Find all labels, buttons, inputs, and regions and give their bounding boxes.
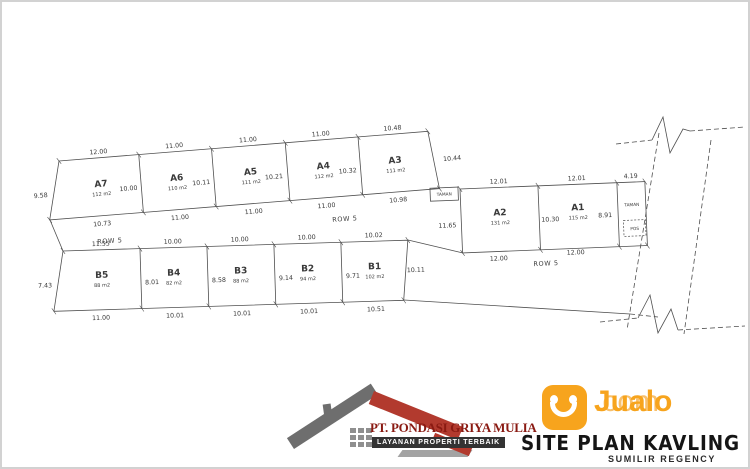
dim-a6-right: 10.11 <box>192 179 211 187</box>
dim-b5-left: 7.43 <box>38 282 52 289</box>
dim-a4-bottom: 11.00 <box>317 202 336 210</box>
right-road-right-line <box>684 140 711 334</box>
plan-title: SITE PLAN KAVLING <box>521 431 740 455</box>
window-icon <box>350 428 372 448</box>
garden-box-label: TAMAN <box>436 191 452 198</box>
dim-a2-top: 12.01 <box>490 178 508 186</box>
road-bottom-line <box>404 300 630 314</box>
dim-b4-bottom: 10.01 <box>166 312 184 320</box>
brand-name: Jualo.com <box>594 385 659 419</box>
plot-a5-area: 111 m2 <box>242 179 262 187</box>
plot-a6-id: A6 <box>170 173 184 184</box>
dim-a5-bottom: 11.00 <box>244 208 263 216</box>
dim-a3-bottom: 10.98 <box>389 196 408 204</box>
dim-a7-left: 9.58 <box>33 192 48 200</box>
plot-a3-area: 111 m2 <box>386 167 406 175</box>
plot-b1-id: B1 <box>368 262 381 272</box>
block-row-a: A7 112 m2 A6 110 m2 A5 111 m2 A4 112 m2 … <box>30 120 464 233</box>
dim-a2-left: 11.65 <box>438 222 456 230</box>
chimney-shape <box>323 404 334 425</box>
plot-a1-area: 115 m2 <box>569 215 588 222</box>
block-row-b: B5 88 m2 B4 82 m2 B3 88 m2 B2 94 m2 B1 1… <box>37 231 426 324</box>
plot-a7-area: 112 m2 <box>92 191 112 199</box>
plan-subtitle: SUMILIR REGENCY <box>608 454 716 464</box>
dim-a1-top: 12.01 <box>568 175 586 183</box>
dim-b1-right: 10.11 <box>407 267 425 275</box>
right-road-top-dash-left <box>616 140 652 144</box>
dim-a5-right: 10.21 <box>265 173 284 181</box>
dim-a1-right: 8.91 <box>598 212 612 220</box>
dim-b4-right: 8.58 <box>212 277 226 284</box>
dim-a7-top: 12.00 <box>89 148 108 156</box>
dim-b4-top: 10.00 <box>164 238 182 246</box>
dim-b2-right: 9.71 <box>346 273 360 280</box>
right-road-top-dash-right <box>690 127 745 131</box>
dim-a1-bottom: 12.00 <box>567 249 585 257</box>
plot-a5-id: A5 <box>244 167 258 178</box>
dim-b3-top: 10.00 <box>231 236 249 244</box>
road-label-left: ROW 5 <box>97 236 123 246</box>
dim-a3-right: 10.44 <box>443 155 462 163</box>
plot-b1-area: 102 m2 <box>365 274 384 281</box>
dim-a4-right: 10.32 <box>338 167 357 175</box>
plot-a4-id: A4 <box>316 161 330 172</box>
break-symbol-bottom <box>638 295 678 333</box>
dim-b1-bottom: 10.51 <box>367 306 385 314</box>
dim-a5-top: 11.00 <box>239 136 258 144</box>
dim-b3-right: 9.14 <box>279 275 293 282</box>
company-tagline: LAYANAN PROPERTI TERBAIK <box>372 437 505 448</box>
dim-b1-top: 10.02 <box>365 232 383 240</box>
plot-b3-id: B3 <box>234 266 247 276</box>
brand-name-main: Jualo <box>594 385 672 419</box>
dim-a2-bottom: 12.00 <box>490 255 508 263</box>
plot-b3-area: 88 m2 <box>233 278 249 285</box>
plot-a7-id: A7 <box>94 179 108 190</box>
dim-a2-right: 10.30 <box>541 216 559 224</box>
road-label-right: ROW 5 <box>533 259 559 268</box>
dim-a6-top: 11.00 <box>165 142 184 150</box>
pos-box-label: POS <box>630 226 639 232</box>
plot-a1-id: A1 <box>571 203 585 214</box>
dim-strip-top: 4.19 <box>623 173 637 181</box>
dim-b3-bottom: 10.01 <box>233 310 251 318</box>
dim-b5-right: 8.01 <box>145 279 159 286</box>
plot-b5-area: 88 m2 <box>94 283 110 290</box>
company-logo: PT. PONDASI GRIYA MULIA LAYANAN PROPERTI… <box>282 384 482 466</box>
dim-a7-bottom: 10.73 <box>93 220 112 228</box>
plot-a4-area: 112 m2 <box>314 173 334 181</box>
dim-a4-top: 11.00 <box>311 130 330 138</box>
jualo-smiley-icon <box>542 385 587 430</box>
plot-a2-id: A2 <box>493 208 507 219</box>
dim-b5-bottom: 11.00 <box>92 315 110 323</box>
page: { "plan": { "row_label": "ROW 5", "garde… <box>0 0 750 469</box>
plot-b5-id: B5 <box>95 271 108 281</box>
company-name: PT. PONDASI GRIYA MULIA <box>370 420 536 436</box>
plot-a6-area: 110 m2 <box>168 185 188 193</box>
plot-a2-area: 131 m2 <box>491 220 510 227</box>
break-symbol-top <box>652 117 690 153</box>
dim-b2-bottom: 10.01 <box>300 308 318 316</box>
road-label-middle: ROW 5 <box>332 214 358 224</box>
right-road <box>600 117 745 334</box>
right-road-bottom-dash-right <box>678 326 745 330</box>
dim-a7-right: 10.00 <box>119 185 138 193</box>
garden-strip-label: TAMAN <box>623 202 639 209</box>
plot-a3-id: A3 <box>388 156 402 167</box>
dim-b2-top: 10.00 <box>298 234 316 242</box>
block-a1-a2: TAMAN A2 131 m2 A1 115 m2 12.01 12.01 4.… <box>430 173 650 273</box>
plot-b4-id: B4 <box>167 268 180 278</box>
right-road-bottom-dash-left <box>600 318 638 322</box>
brand-block: Jualo.com SITE PLAN KAVLING SUMILIR REGE… <box>538 383 748 467</box>
left-boundary-jog <box>50 220 63 251</box>
plot-b2-area: 94 m2 <box>300 276 316 283</box>
dim-a3-top: 10.48 <box>383 124 402 132</box>
road-top-connector <box>408 240 463 253</box>
plot-b4-area: 82 m2 <box>166 280 182 287</box>
plot-b2-id: B2 <box>301 264 314 274</box>
dim-a6-bottom: 11.00 <box>171 214 190 222</box>
smile-shape <box>550 402 577 417</box>
